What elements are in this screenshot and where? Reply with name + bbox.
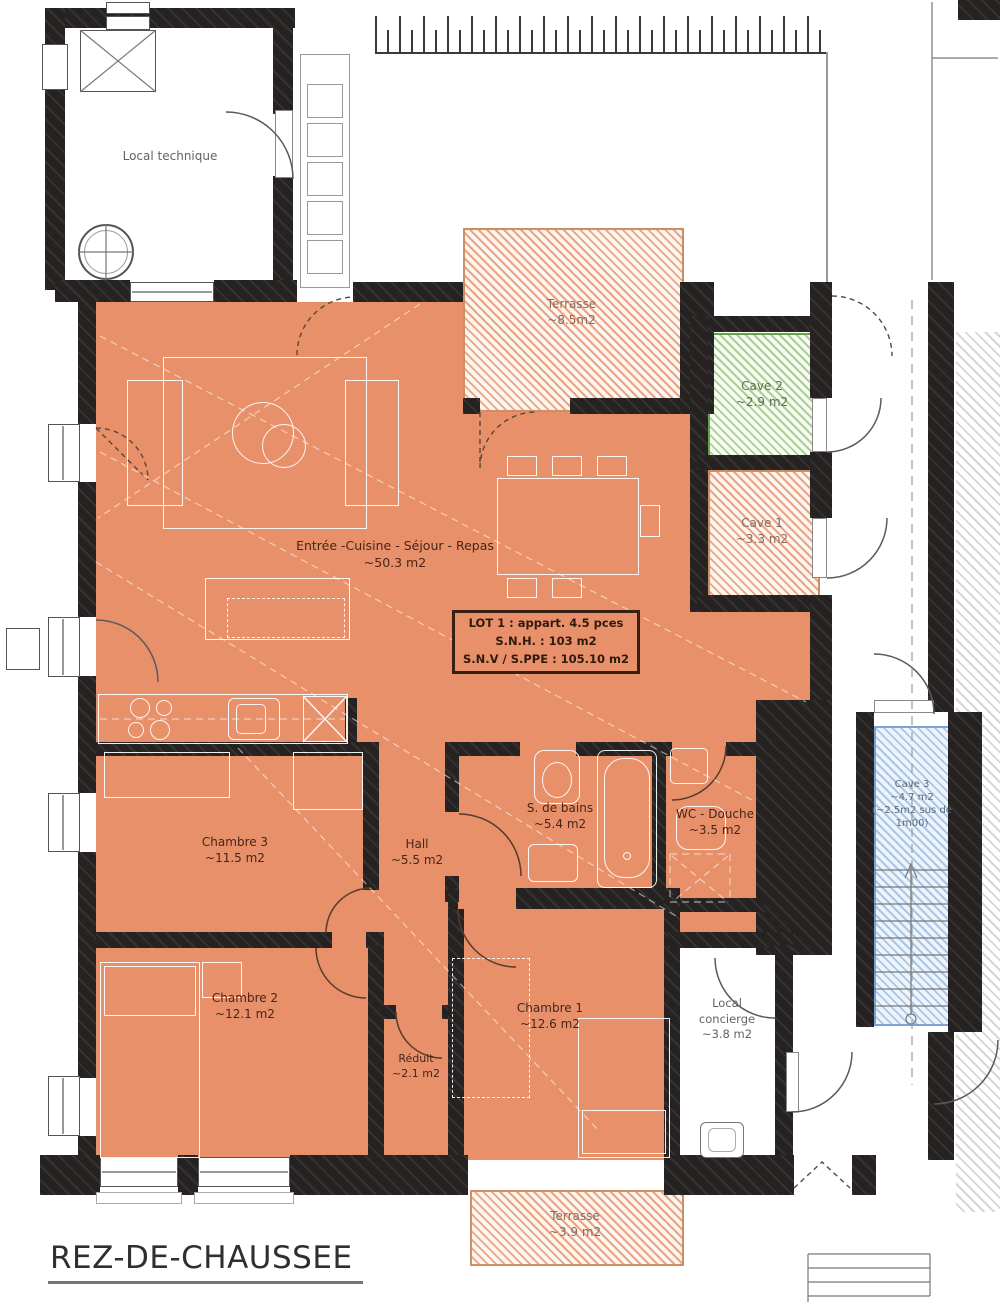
kitchen-sink-basin: [236, 704, 266, 734]
label-terrasse-top: Terrasse ~8.5m2: [463, 296, 680, 328]
wall: [810, 595, 832, 705]
wall: [45, 8, 295, 28]
ventilation-unit: [80, 30, 156, 92]
wall: [856, 712, 874, 1027]
sofa: [345, 380, 399, 506]
room-note: (~2.5m2 sus de 1m00): [872, 804, 952, 830]
wall: [516, 888, 680, 909]
wall: [384, 1005, 396, 1019]
wall: [40, 1155, 100, 1195]
wall: [664, 1155, 794, 1195]
wall: [463, 398, 480, 414]
shelf: [307, 162, 343, 196]
wall: [852, 1155, 876, 1195]
room-name: Cave 2: [708, 378, 816, 394]
bathtub-drain: [623, 852, 631, 860]
fridge: [303, 696, 347, 742]
window-line: [200, 1171, 288, 1173]
wall: [928, 282, 954, 712]
wall: [948, 712, 982, 1032]
wall: [958, 0, 1000, 20]
chair: [640, 505, 660, 537]
armchair-circle: [262, 424, 306, 468]
room-name: Chambre 3: [140, 834, 330, 850]
fence-baseline: [375, 52, 827, 54]
hob-burner: [130, 698, 150, 718]
room-area: ~11.5 m2: [140, 850, 330, 866]
floor-plan: Local technique Terrasse ~8.5m2 Cave 2 ~…: [0, 0, 1000, 1308]
window: [48, 617, 80, 677]
room-area: ~5.4 m2: [500, 816, 620, 832]
room-area: ~12.1 m2: [130, 1006, 360, 1022]
room-area: ~3.8 m2: [690, 1027, 764, 1043]
chair: [507, 578, 537, 598]
label-cave3: Cave 3 ~4.7 m2 (~2.5m2 sus de 1m00): [872, 778, 952, 830]
window: [42, 44, 68, 90]
room-area: ~3.3 m2: [708, 531, 816, 547]
room-name: Cave 1: [708, 515, 816, 531]
toilet-bowl: [542, 762, 572, 798]
label-wc: WC - Douche ~3.5 m2: [660, 806, 770, 838]
room-area: ~2.9 m2: [708, 394, 816, 410]
hob-burner: [150, 720, 170, 740]
room-name: Cave 3: [872, 778, 952, 791]
shelf: [307, 123, 343, 157]
window: [48, 424, 80, 482]
lot-line: LOT 1 : appart. 4.5 pces: [455, 615, 637, 633]
shelf: [307, 240, 343, 274]
room-name: WC - Douche: [660, 806, 770, 822]
courtyard-fence: [375, 16, 827, 54]
door-leaf: [786, 1052, 799, 1112]
room-area: ~3.9 m2: [470, 1224, 680, 1240]
label-chambre2: Chambre 2 ~12.1 m2: [130, 990, 360, 1022]
door-leaf: [275, 110, 293, 178]
wall: [273, 8, 293, 114]
room-name: Chambre 2: [130, 990, 360, 1006]
door-leaf: [874, 700, 934, 713]
shelf: [307, 201, 343, 235]
label-chambre1: Chambre 1 ~12.6 m2: [470, 1000, 630, 1032]
window-line: [62, 1078, 64, 1134]
room-area: ~4.7 m2: [872, 791, 952, 804]
room-name: Hall: [372, 836, 462, 852]
exterior-post: [6, 628, 40, 670]
fence-ticks-short: [387, 30, 827, 52]
boiler-circle-inner: [84, 230, 128, 274]
room-name: Terrasse: [470, 1208, 680, 1224]
bed: [104, 752, 230, 798]
label-local-technique: Local technique: [70, 148, 270, 164]
room-area: ~5.5 m2: [372, 852, 462, 868]
room-area: ~8.5m2: [463, 312, 680, 328]
room-cave3-stair: [874, 726, 954, 1026]
wall: [810, 452, 832, 518]
room-name: S. de bains: [500, 800, 620, 816]
label-chambre3: Chambre 3 ~11.5 m2: [140, 834, 330, 866]
wall: [95, 932, 332, 948]
label-cave2: Cave 2 ~2.9 m2: [708, 378, 816, 410]
washbasin: [528, 844, 578, 882]
hob-burner: [156, 700, 172, 716]
room-name: Chambre 1: [470, 1000, 630, 1016]
window: [48, 793, 80, 852]
wardrobe: [293, 752, 363, 810]
window-line: [62, 619, 64, 675]
chair: [507, 456, 537, 476]
chair: [552, 578, 582, 598]
label-concierge: Local concierge ~3.8 m2: [690, 996, 764, 1043]
wall: [726, 742, 780, 756]
room-area: ~3.5 m2: [660, 822, 770, 838]
window-line: [102, 1171, 176, 1173]
plan-title: REZ-DE-CHAUSSEE: [48, 1240, 363, 1284]
wall: [455, 742, 520, 756]
wall: [78, 676, 96, 793]
room-area: ~2.1 m2: [378, 1067, 454, 1082]
window-sill: [96, 1192, 182, 1204]
label-bains: S. de bains ~5.4 m2: [500, 800, 620, 832]
courtyard-right-line: [826, 52, 828, 282]
wall: [448, 888, 458, 909]
wall: [78, 852, 96, 1078]
chimney: [106, 2, 150, 14]
room-name: Entrée -Cuisine - Séjour - Repas: [230, 538, 560, 555]
lot-line: S.N.H. : 103 m2: [455, 633, 637, 651]
label-reduit: Réduit ~2.1 m2: [378, 1052, 454, 1082]
room-area: ~12.6 m2: [470, 1016, 630, 1032]
window-sill: [194, 1192, 294, 1204]
kitchen-island-inner: [227, 598, 345, 638]
wall: [273, 176, 293, 286]
sofa: [127, 380, 183, 506]
bed-pillow: [582, 1110, 666, 1154]
sink-basin: [708, 1128, 736, 1152]
shelf: [307, 84, 343, 118]
wall: [445, 742, 459, 812]
chair: [597, 456, 627, 476]
hob-burner: [128, 722, 144, 738]
wall: [178, 1155, 198, 1195]
label-sejour: Entrée -Cuisine - Séjour - Repas ~50.3 m…: [230, 538, 560, 572]
room-name: Local concierge: [699, 996, 755, 1026]
wall: [78, 482, 96, 617]
label-terrasse-bottom: Terrasse ~3.9 m2: [470, 1208, 680, 1240]
chimney: [106, 16, 150, 30]
room-name: Réduit: [378, 1052, 454, 1067]
chair: [552, 456, 582, 476]
room-area: ~50.3 m2: [230, 555, 560, 572]
window-line: [62, 795, 64, 850]
window-line: [132, 291, 212, 293]
washbasin: [670, 748, 708, 784]
wall: [78, 300, 96, 424]
wall: [290, 1155, 468, 1195]
window-line: [62, 426, 64, 480]
room-name: Local technique: [70, 148, 270, 164]
wall: [353, 282, 463, 302]
lot-info-box: LOT 1 : appart. 4.5 pces S.N.H. : 103 m2…: [452, 610, 640, 674]
wall: [214, 280, 297, 302]
window: [48, 1076, 80, 1136]
lot-line: S.N.V / S.PPE : 105.10 m2: [455, 651, 637, 669]
wall: [55, 280, 130, 302]
label-hall: Hall ~5.5 m2: [372, 836, 462, 868]
wall: [570, 398, 680, 414]
wall: [928, 1032, 954, 1160]
room-name: Terrasse: [463, 296, 680, 312]
label-cave1: Cave 1 ~3.3 m2: [708, 515, 816, 547]
